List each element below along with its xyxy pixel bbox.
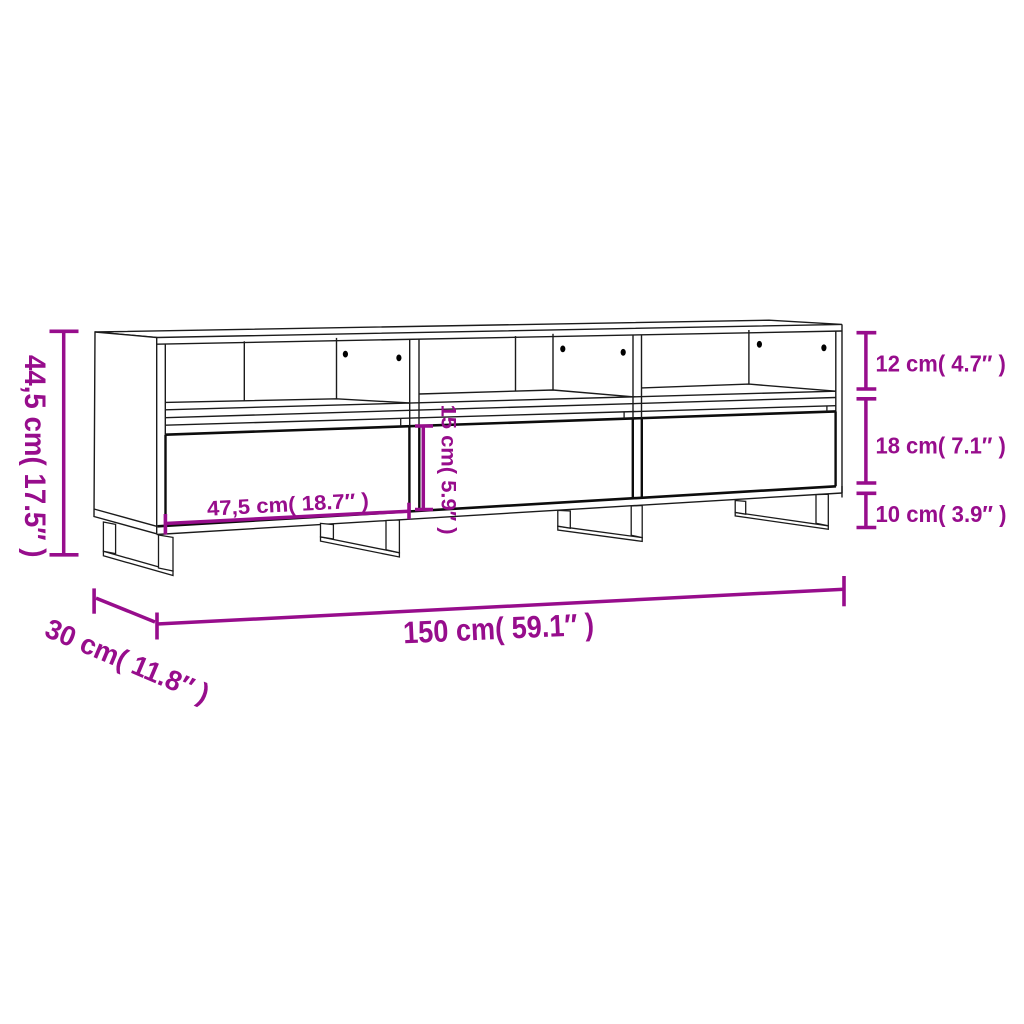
svg-text:44,5 cm( 17.5″ ): 44,5 cm( 17.5″ ) — [18, 355, 51, 558]
svg-text:10 cm( 3.9″ ): 10 cm( 3.9″ ) — [876, 501, 1007, 527]
svg-text:18 cm( 7.1″ ): 18 cm( 7.1″ ) — [876, 432, 1006, 458]
svg-text:12 cm( 4.7″ ): 12 cm( 4.7″ ) — [876, 350, 1006, 376]
svg-text:15 cm( 5.9″ ): 15 cm( 5.9″ ) — [437, 405, 460, 535]
